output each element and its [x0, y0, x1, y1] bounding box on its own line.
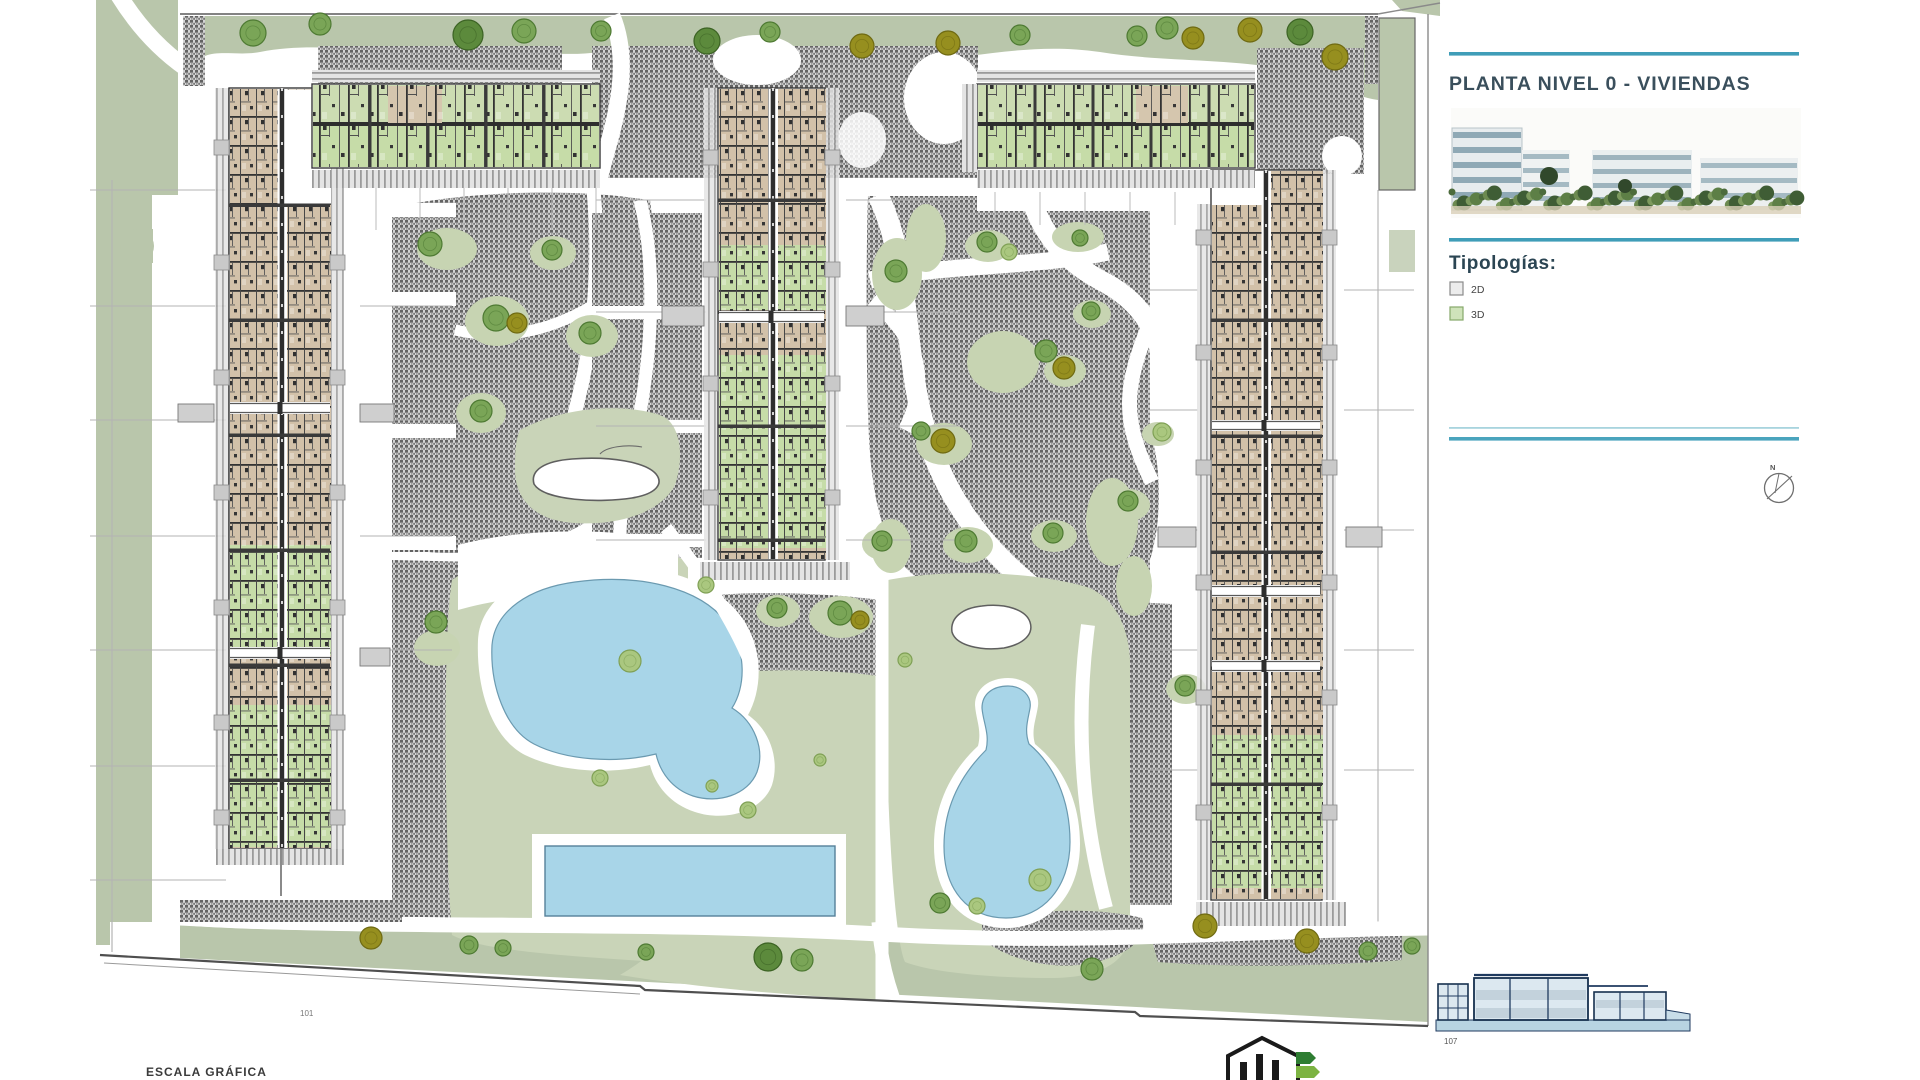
svg-text:3D: 3D: [1471, 309, 1485, 321]
svg-text:107: 107: [1444, 1037, 1458, 1046]
svg-text:PLANTA NIVEL 0 - VIVIENDAS: PLANTA NIVEL 0 - VIVIENDAS: [1449, 73, 1751, 95]
svg-text:101: 101: [300, 1009, 314, 1018]
svg-text:2D: 2D: [1471, 284, 1485, 296]
svg-text:N: N: [1770, 463, 1775, 472]
svg-text:ESCALA GRÁFICA: ESCALA GRÁFICA: [146, 1064, 267, 1079]
svg-text:Tipologías:: Tipologías:: [1449, 253, 1557, 274]
